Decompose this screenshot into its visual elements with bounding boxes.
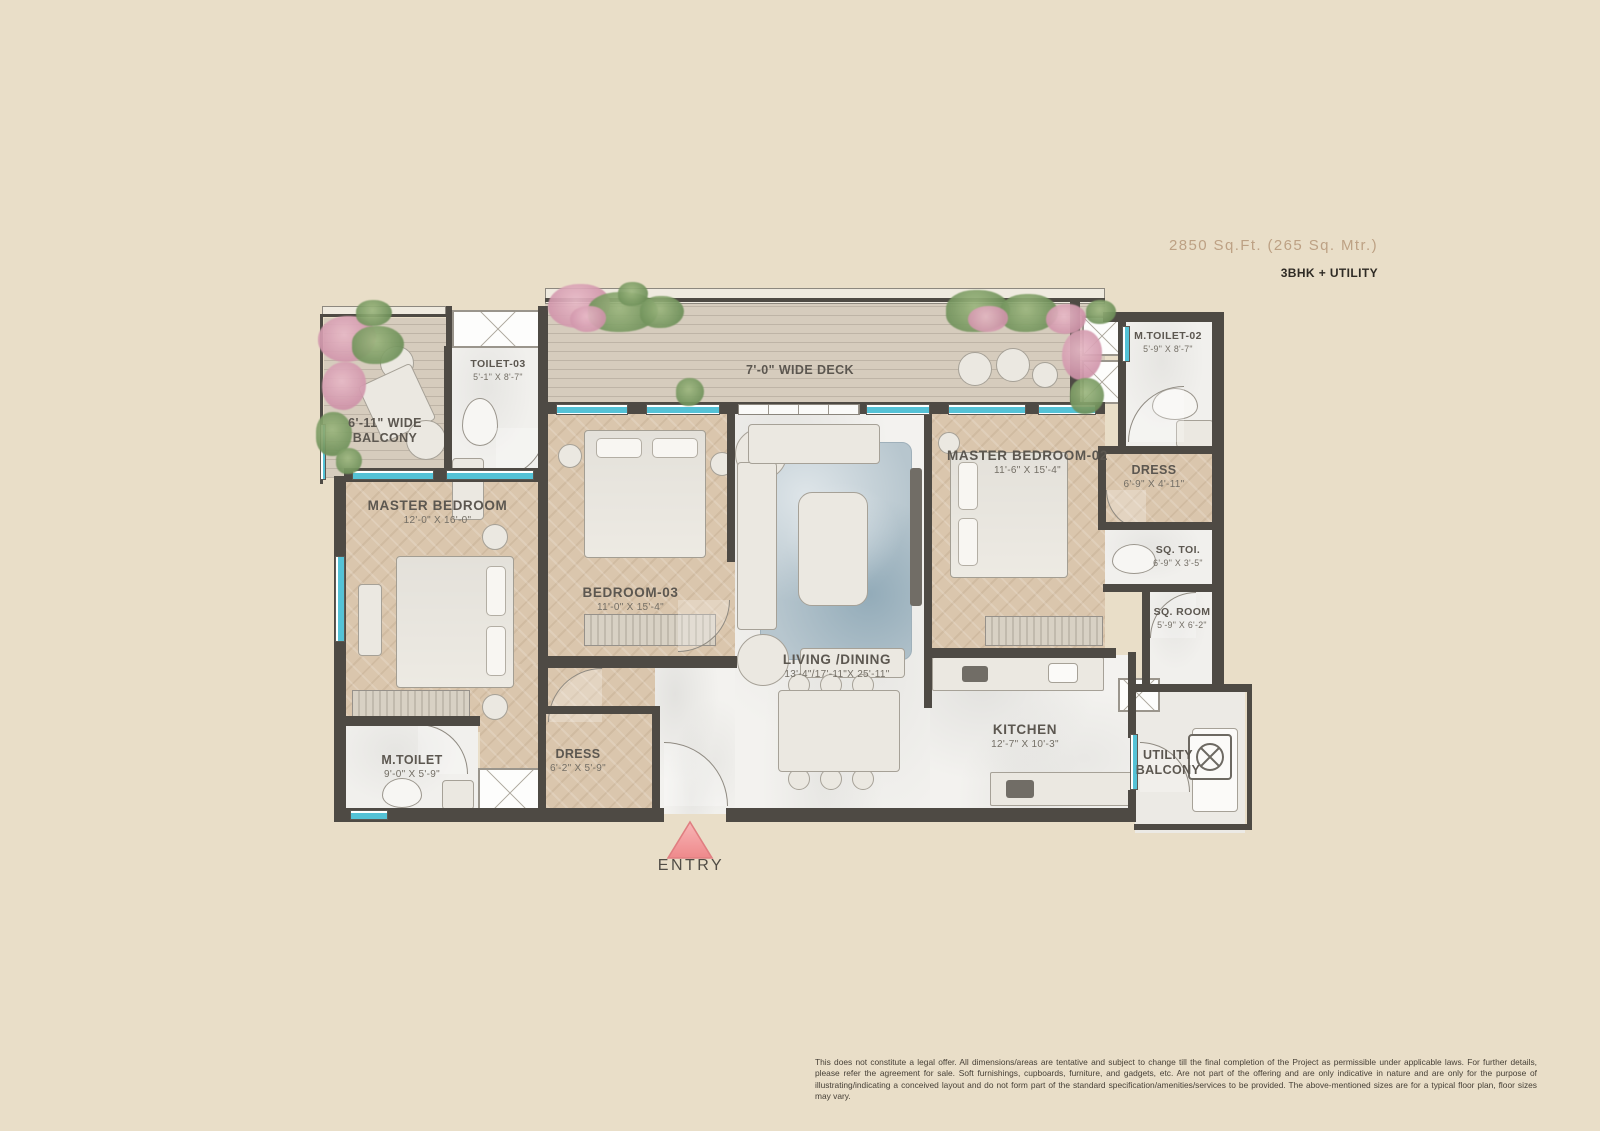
sofa	[748, 424, 880, 464]
hob	[962, 666, 988, 682]
window	[352, 470, 434, 480]
furniture	[486, 626, 506, 676]
wall-segment	[538, 706, 660, 714]
vanity	[442, 780, 474, 810]
stove	[1006, 780, 1034, 798]
sofa	[737, 462, 777, 630]
floor-plan: 7'-0" WIDE DECK 6'-11" WIDE BALCONY TOIL…	[0, 0, 1600, 1131]
sink	[1048, 663, 1078, 683]
nightstand	[482, 694, 508, 720]
wall-segment	[538, 664, 548, 710]
furniture	[596, 438, 642, 458]
disclaimer-text: This does not constitute a legal offer. …	[815, 1057, 1537, 1102]
closet-hatch	[452, 310, 544, 348]
wall-segment	[1142, 588, 1150, 688]
furniture	[958, 518, 978, 566]
window	[556, 404, 628, 415]
sliding-door	[738, 404, 860, 415]
wall-segment	[726, 808, 1136, 822]
wall-segment	[1128, 652, 1136, 738]
wall-segment	[1103, 584, 1216, 592]
nightstand	[938, 432, 960, 454]
wardrobe	[985, 616, 1103, 646]
bench	[358, 584, 382, 656]
page: { "header": { "area": "2850 Sq.Ft. (265 …	[0, 0, 1600, 1131]
wall-segment	[444, 346, 452, 480]
wall-segment	[545, 656, 737, 668]
window	[866, 404, 930, 415]
wicker-chair	[958, 352, 992, 386]
window	[446, 470, 534, 480]
area-text: 2850 Sq.Ft. (265 Sq. Mtr.)	[1169, 237, 1378, 254]
window	[350, 810, 388, 820]
wall-segment	[538, 706, 546, 810]
window	[1130, 734, 1138, 790]
side-pot	[1032, 362, 1058, 388]
wall-segment	[1103, 522, 1216, 530]
wall-segment	[924, 648, 1116, 658]
wall-segment	[340, 716, 480, 726]
wall-segment	[538, 306, 548, 666]
wall-segment	[1098, 446, 1216, 454]
wall-segment	[334, 476, 346, 822]
wall-segment	[727, 412, 735, 562]
wall-segment	[1212, 312, 1224, 692]
coffee-table	[798, 492, 868, 606]
wall-segment	[1247, 686, 1252, 828]
console-bench	[800, 648, 905, 678]
wicker-chair	[996, 348, 1030, 382]
wall-segment	[924, 652, 932, 708]
toilet-wc	[1112, 544, 1156, 574]
toilet-wc	[462, 398, 498, 446]
entry-label: ENTRY	[636, 857, 746, 875]
window	[335, 556, 345, 642]
wall-segment	[446, 306, 452, 348]
furniture	[652, 438, 698, 458]
wall-segment	[652, 706, 660, 810]
window	[948, 404, 1026, 415]
furniture	[958, 462, 978, 510]
wall-segment	[1128, 790, 1136, 812]
wall-segment	[924, 412, 932, 658]
wall-segment	[480, 808, 664, 822]
planter-pot	[406, 420, 446, 460]
window	[646, 404, 720, 415]
entry-arrow-icon	[666, 820, 714, 860]
window	[1122, 326, 1130, 362]
nightstand	[558, 444, 582, 468]
wall-segment	[1098, 448, 1106, 530]
nightstand	[482, 524, 508, 550]
dining-table	[778, 690, 900, 772]
wall-segment	[1134, 824, 1252, 830]
washing-machine-icon	[1188, 734, 1232, 780]
tv-console	[910, 468, 922, 606]
lounge-chair	[737, 634, 789, 686]
furniture	[486, 566, 506, 616]
toilet-wc	[382, 778, 422, 808]
kitchen-counter	[932, 657, 1104, 691]
wall-segment	[1135, 684, 1252, 692]
config-text: 3BHK + UTILITY	[1281, 266, 1378, 280]
